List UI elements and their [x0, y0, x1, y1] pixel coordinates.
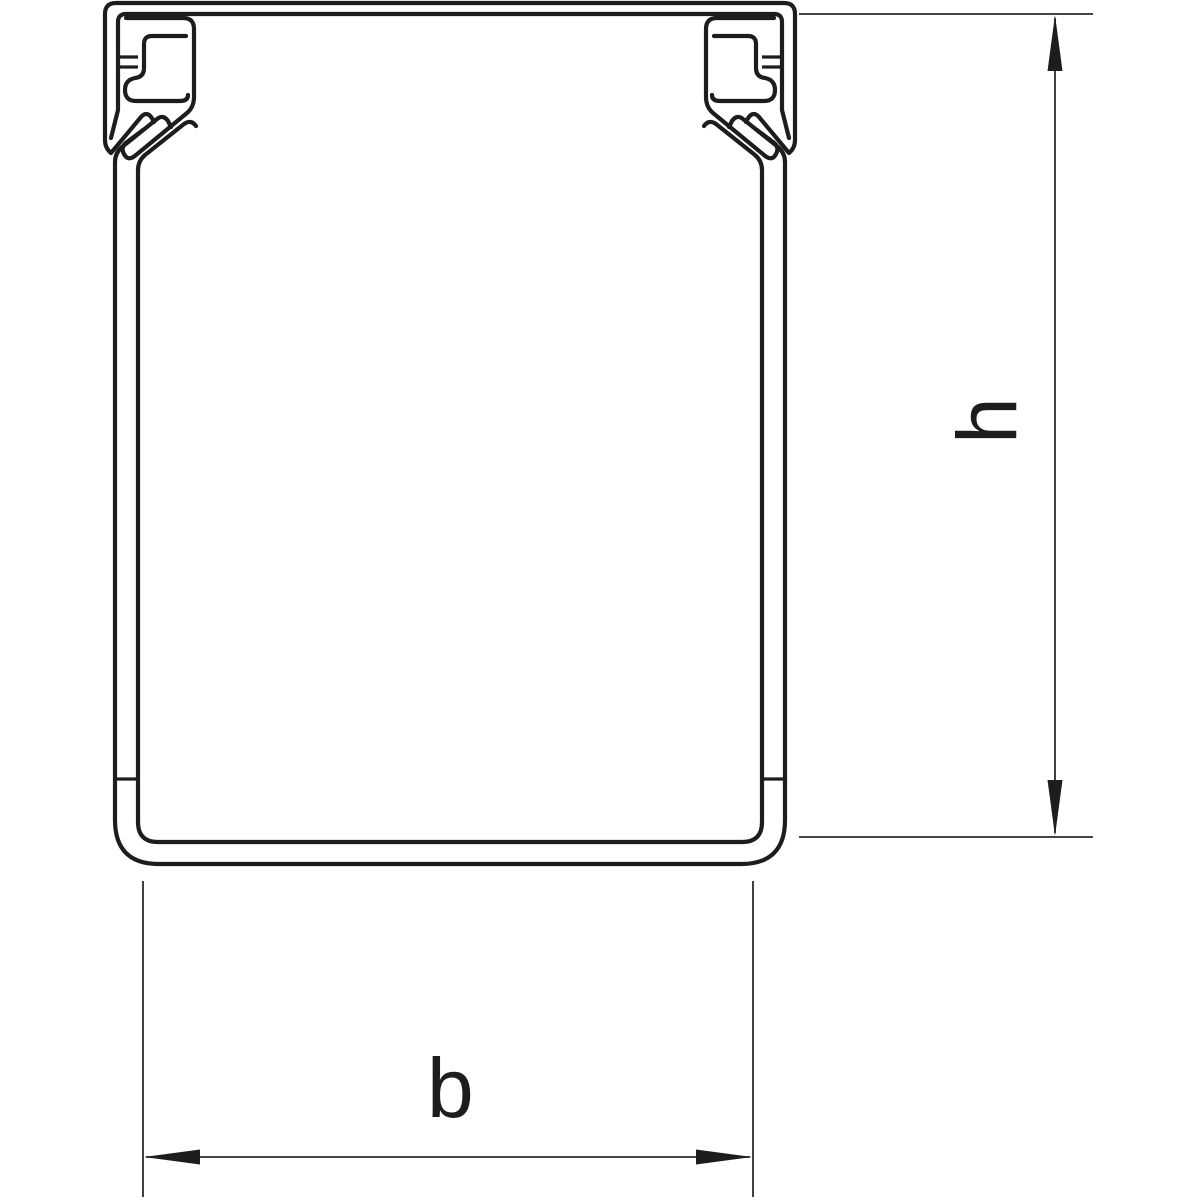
- cover-outer-contour: [105, 3, 795, 153]
- duct-profile: [105, 3, 795, 864]
- body-outer-wall: [115, 117, 785, 864]
- height-arrow-down-icon: [1048, 780, 1063, 836]
- dimension-width: b: [143, 881, 753, 1197]
- height-arrow-up-icon: [1048, 15, 1063, 71]
- width-label: b: [427, 1041, 474, 1135]
- dimension-height: h: [799, 14, 1093, 837]
- body-inner-wall: [138, 122, 762, 842]
- technical-drawing-canvas: h b: [0, 0, 1200, 1200]
- height-label: h: [940, 397, 1034, 444]
- duct-cross-section-svg: h b: [0, 0, 1200, 1200]
- width-arrow-left-icon: [144, 1150, 200, 1165]
- width-arrow-right-icon: [696, 1150, 752, 1165]
- cover-inner-contour: [111, 14, 789, 138]
